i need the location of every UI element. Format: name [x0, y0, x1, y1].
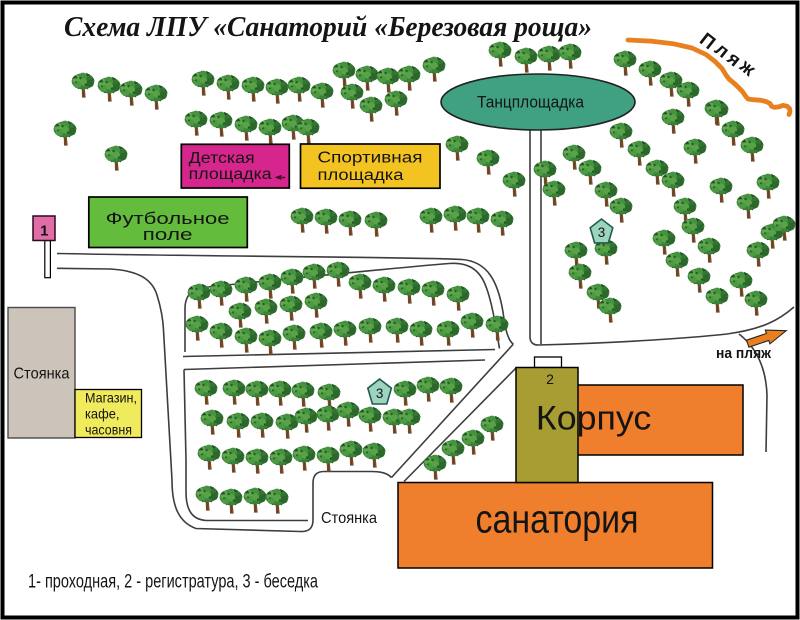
svg-text:3: 3 — [598, 225, 606, 240]
svg-text:поле: поле — [143, 225, 193, 244]
svg-text:Корпус: Корпус — [536, 400, 651, 438]
svg-text:часовня: часовня — [85, 422, 132, 438]
svg-text:Детская: Детская — [189, 150, 255, 167]
svg-text:Стоянка: Стоянка — [14, 366, 70, 383]
svg-text:площадка: площадка — [189, 166, 272, 183]
svg-text:2: 2 — [546, 371, 554, 387]
svg-text:Схема ЛПУ «Санаторий «Березова: Схема ЛПУ «Санаторий «Березовая роща» — [64, 12, 592, 43]
svg-text:3: 3 — [376, 386, 384, 401]
svg-text:на пляж: на пляж — [716, 345, 771, 362]
svg-text:Танцплощадка: Танцплощадка — [477, 93, 584, 112]
svg-text:Магазин,: Магазин, — [85, 390, 137, 406]
svg-text:1- проходная, 2 - регистратура: 1- проходная, 2 - регистратура, 3 - бесе… — [28, 572, 318, 593]
svg-text:кафе,: кафе, — [85, 406, 120, 422]
svg-text:1: 1 — [40, 223, 48, 240]
svg-text:площадка: площадка — [318, 167, 404, 184]
svg-text:Спортивная: Спортивная — [318, 149, 423, 166]
svg-text:санатория: санатория — [476, 498, 639, 542]
svg-text:Стоянка: Стоянка — [321, 510, 377, 527]
